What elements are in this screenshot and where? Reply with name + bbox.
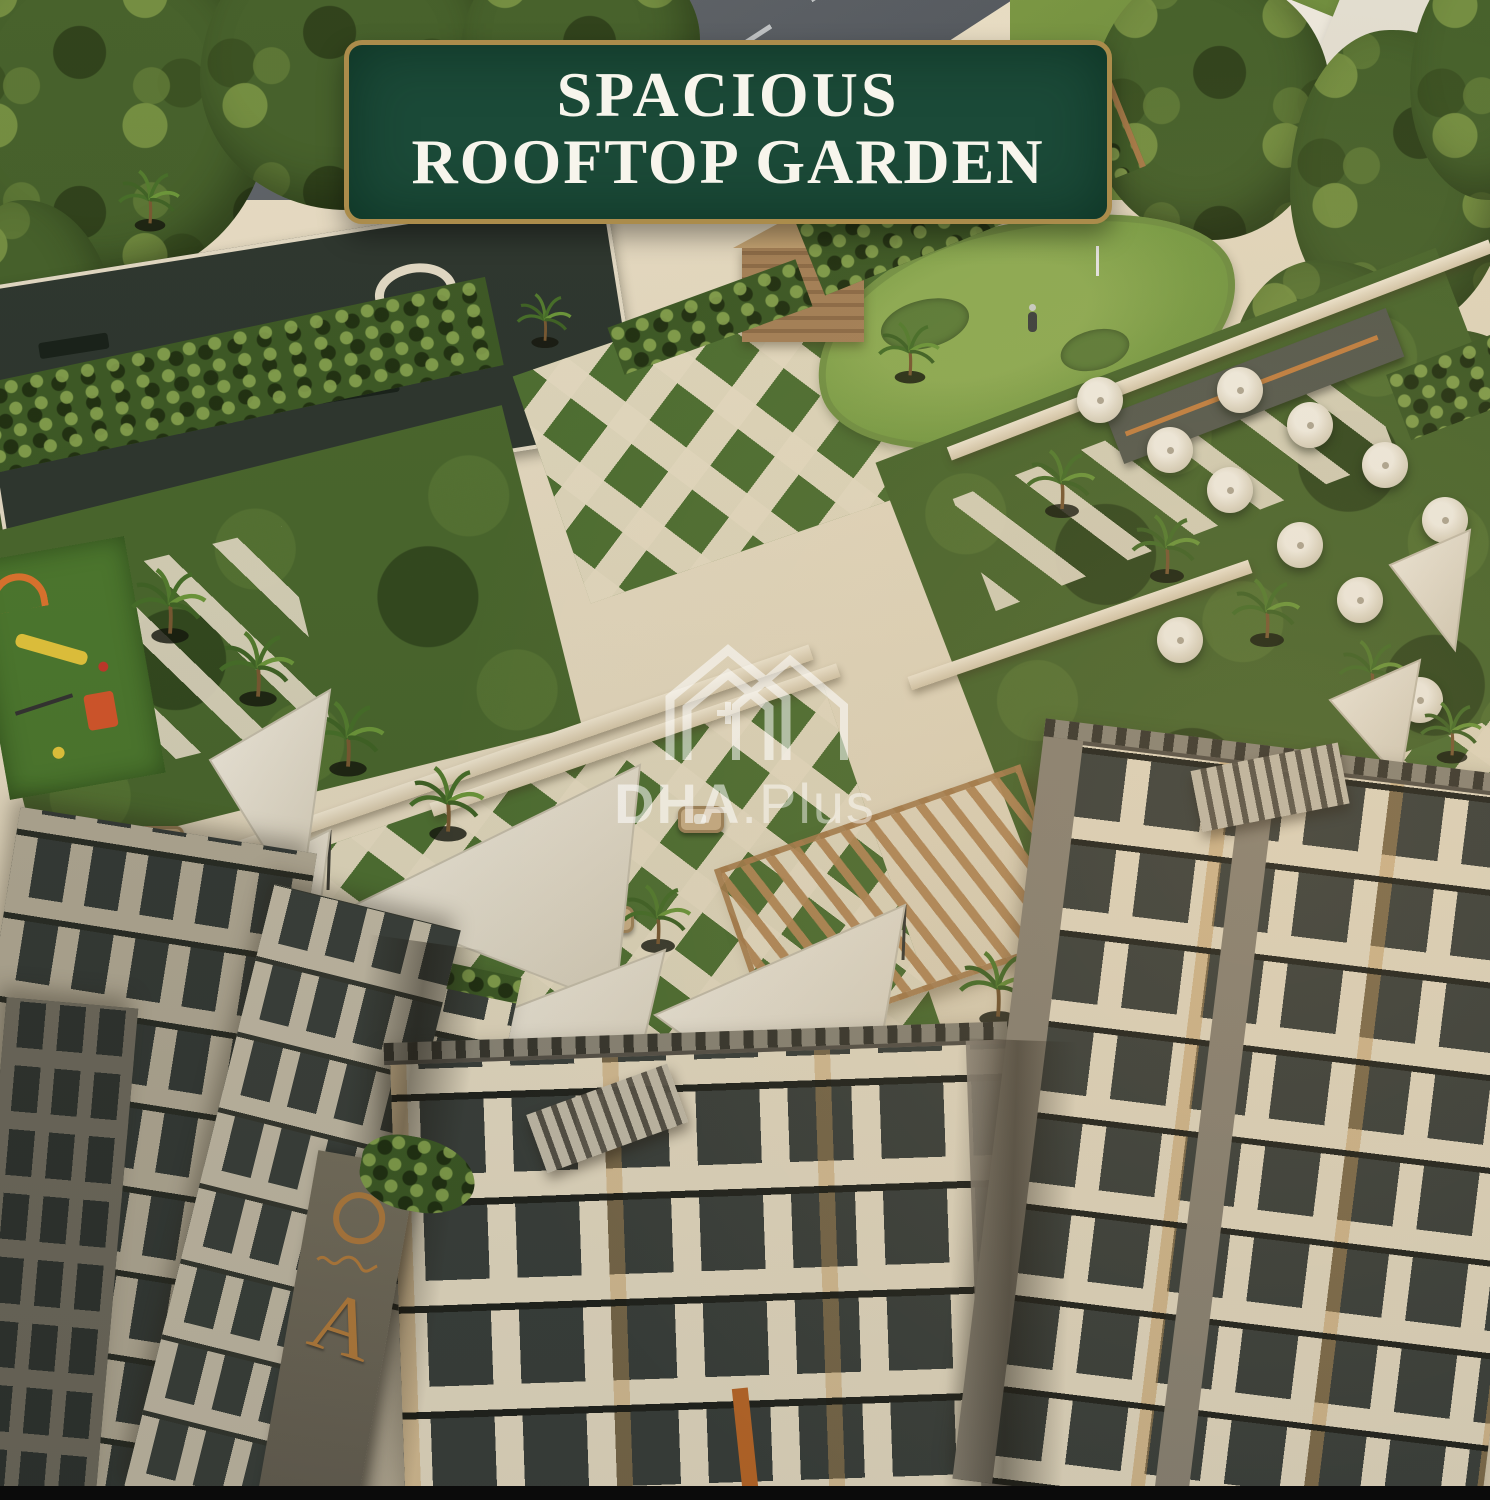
playground-tower: [83, 690, 119, 731]
patio-umbrella: [1207, 467, 1253, 513]
swing-frame: [15, 693, 73, 715]
banner-title-line1: SPACIOUS: [349, 61, 1107, 128]
patio-umbrella: [1157, 617, 1203, 663]
patio-umbrella: [1277, 522, 1323, 568]
apartment-tower-center: [390, 1039, 1026, 1500]
patio-umbrella: [1337, 577, 1383, 623]
patio-umbrella: [1397, 677, 1443, 723]
outdoor-seating: [678, 806, 724, 833]
patio-umbrella: [1147, 427, 1193, 473]
facade-pilaster: [1153, 761, 1278, 1500]
patio-umbrella: [1077, 377, 1123, 423]
patio-umbrella: [1362, 442, 1408, 488]
bottom-black-strip: [0, 1486, 1490, 1500]
building-gap-shadow: [942, 1038, 1078, 1500]
playground-slide: [14, 632, 89, 666]
patio-umbrella: [1217, 367, 1263, 413]
balcony-awning: [526, 1064, 688, 1174]
patio-umbrella: [1422, 497, 1468, 543]
outdoor-seating: [808, 976, 854, 1003]
balcony-awning: [1191, 742, 1350, 831]
gym-equipment: [38, 332, 110, 359]
scene-canvas: A SPACIOUS ROOFTOP GARDEN DHA.Plus: [0, 0, 1490, 1500]
banner-title-line2: ROOFTOP GARDEN: [349, 128, 1107, 195]
playground-arch: [0, 569, 49, 616]
block-letter: A: [298, 1268, 388, 1382]
playground-detail: [98, 661, 110, 673]
golfer-figure: [1028, 312, 1037, 332]
headline-banner: SPACIOUS ROOFTOP GARDEN: [344, 40, 1112, 224]
outdoor-seating: [588, 906, 634, 933]
playground-detail: [52, 746, 66, 760]
golf-flag: [1096, 246, 1099, 276]
patio-umbrella: [1287, 402, 1333, 448]
